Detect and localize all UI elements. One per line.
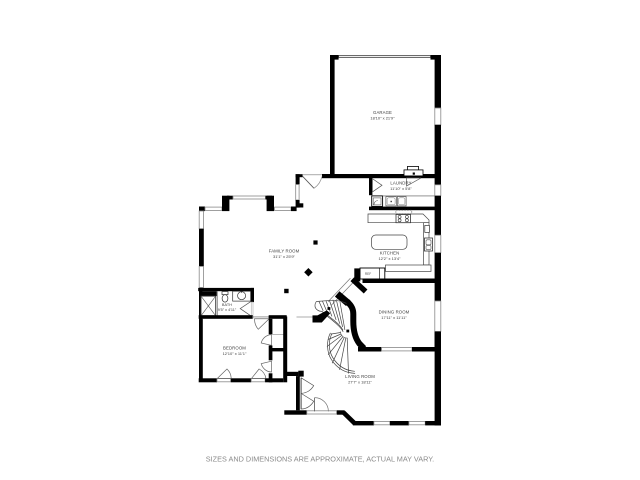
svg-text:DINING ROOM: DINING ROOM [379,310,410,315]
svg-text:FAMILY ROOM: FAMILY ROOM [269,249,300,254]
svg-text:18'10" x 21'9": 18'10" x 21'9" [370,116,395,121]
svg-text:BEDROOM: BEDROOM [223,346,246,351]
svg-text:27'7" x 18'11": 27'7" x 18'11" [348,380,372,385]
svg-text:LIVING ROOM: LIVING ROOM [345,374,375,379]
svg-text:9'5" x 4'11": 9'5" x 4'11" [218,308,237,312]
svg-text:12'10" x 11'1": 12'10" x 11'1" [223,351,247,356]
svg-text:LAUNDRY: LAUNDRY [390,181,411,186]
svg-text:31'1" x 25'9": 31'1" x 25'9" [273,254,296,259]
svg-text:17'11" x 11'11": 17'11" x 11'11" [381,315,407,320]
svg-text:KITCHEN: KITCHEN [380,251,400,256]
svg-text:GARAGE: GARAGE [373,110,392,115]
svg-text:REF: REF [365,272,371,276]
svg-text:11'10" x 5'8": 11'10" x 5'8" [390,186,412,191]
svg-text:SIZES AND DIMENSIONS ARE APPRO: SIZES AND DIMENSIONS ARE APPROXIMATE, AC… [206,455,434,464]
svg-text:BATH: BATH [222,303,232,307]
svg-text:12'2" x 13'4": 12'2" x 13'4" [379,256,402,261]
